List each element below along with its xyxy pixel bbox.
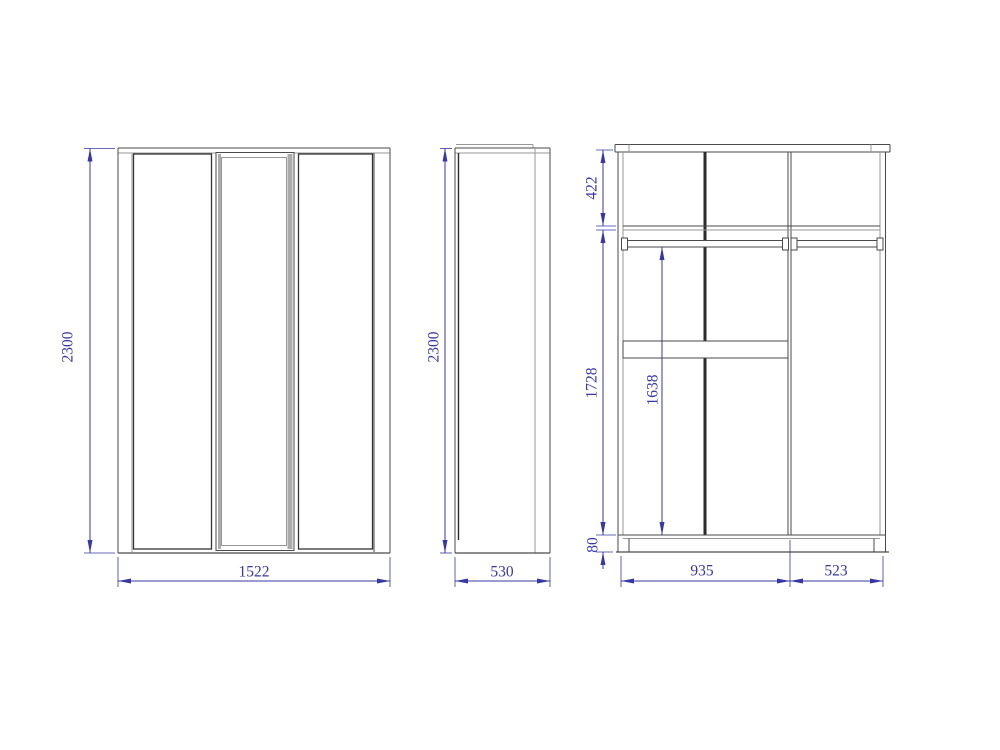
dim-internal-hanging-height: 1638 [645,247,663,535]
dim-internal-lower-section: 1728 [584,230,617,535]
dim-label-plinth-height: 80 [585,537,602,553]
internal-view: 422 1728 80 1638 935 523 [584,145,891,588]
dim-label-front-height: 2300 [60,331,77,362]
side-carcass [455,145,550,554]
front-right-door [299,154,373,549]
dim-front-height: 2300 [60,149,116,554]
dim-label-right-width: 523 [824,563,848,580]
front-mirror-door [216,153,294,551]
dim-label-top-section: 422 [584,176,601,199]
front-left-door [134,154,212,549]
dim-label-lower-section: 1728 [584,367,601,398]
internal-middle-shelf [623,341,788,358]
dim-side-height: 2300 [426,149,453,554]
front-view: 2300 1522 [60,148,391,587]
side-view: 2300 530 [426,145,551,588]
dim-front-width: 1522 [118,557,390,587]
dim-internal-top-section: 422 [584,150,617,226]
internal-top-panel [615,145,890,153]
technical-drawing-canvas: 2300 1522 2300 [0,0,1000,750]
dim-label-left-width: 935 [690,563,714,580]
dim-label-hanging-height: 1638 [645,374,662,405]
internal-hanging-rail-right [791,238,883,250]
dim-label-front-width: 1522 [239,564,270,581]
dim-label-side-depth: 530 [490,564,514,581]
dim-side-depth: 530 [455,557,550,587]
dim-label-side-height: 2300 [426,331,443,362]
technical-drawing-page: 2300 1522 2300 [0,0,1000,750]
dim-internal-plinth: 80 [585,518,614,569]
dim-internal-right-width: 523 [790,556,883,587]
dim-internal-left-width: 935 [621,540,790,587]
